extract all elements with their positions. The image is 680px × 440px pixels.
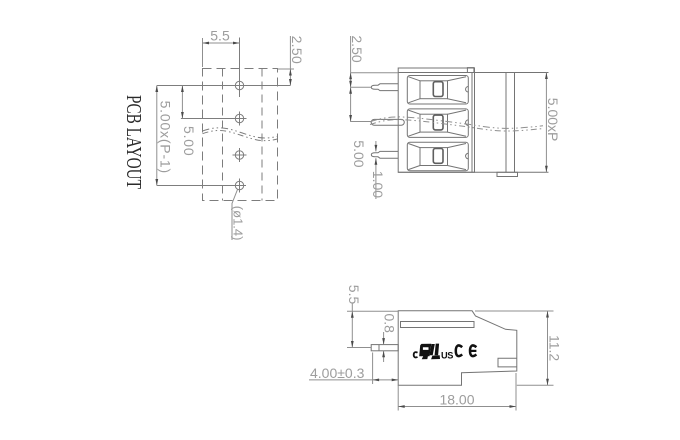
svg-text:US: US <box>441 350 453 360</box>
svg-text:2.50: 2.50 <box>349 35 365 62</box>
svg-text:5.00: 5.00 <box>351 140 367 167</box>
svg-text:18.00: 18.00 <box>439 392 474 408</box>
svg-text:5.00xP: 5.00xP <box>545 98 561 142</box>
svg-text:0.8: 0.8 <box>382 314 398 334</box>
svg-text:2.50: 2.50 <box>289 36 305 64</box>
svg-text:(ø1.4): (ø1.4) <box>231 206 246 241</box>
svg-text:1.00: 1.00 <box>370 171 386 198</box>
svg-text:PCB LAYOUT: PCB LAYOUT <box>122 95 146 189</box>
svg-text:5.00: 5.00 <box>181 126 197 156</box>
svg-text:4.00±0.3: 4.00±0.3 <box>310 365 365 381</box>
svg-text:11.2: 11.2 <box>547 335 563 361</box>
svg-text:5.5: 5.5 <box>346 285 362 305</box>
svg-text:5.00x(P-1): 5.00x(P-1) <box>158 101 174 174</box>
svg-text:5.5: 5.5 <box>210 28 230 44</box>
